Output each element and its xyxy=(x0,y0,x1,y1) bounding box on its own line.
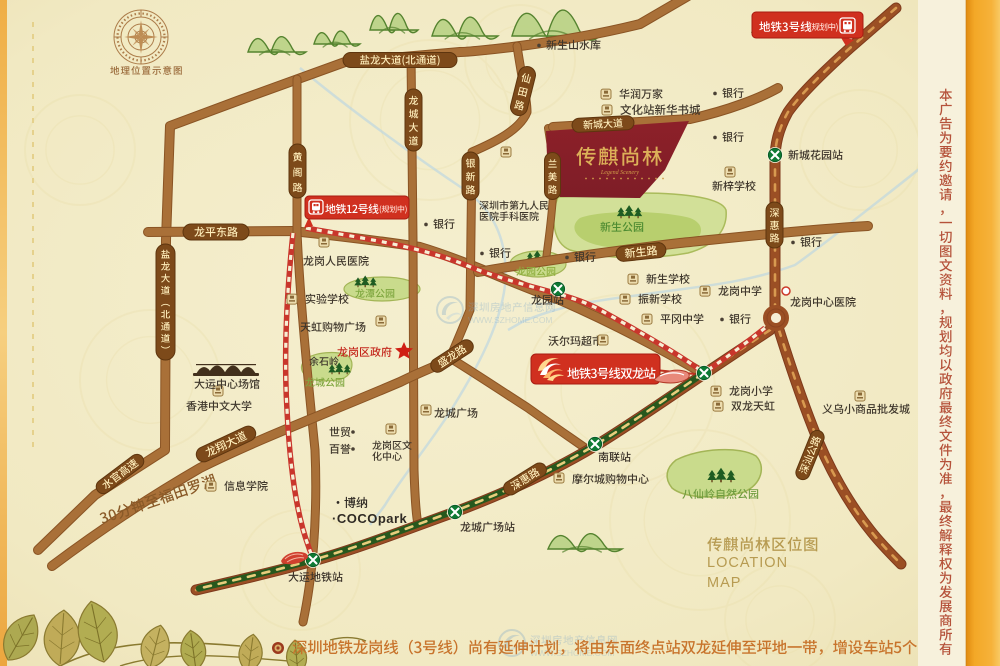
svg-text:LOCATION: LOCATION xyxy=(707,555,788,571)
svg-text:Legend Scenery: Legend Scenery xyxy=(600,170,639,176)
svg-text:MAP: MAP xyxy=(707,575,741,591)
svg-text:WWW.SZHOME.COM: WWW.SZHOME.COM xyxy=(468,315,553,325)
svg-text:·COCOpark: ·COCOpark xyxy=(332,511,408,526)
